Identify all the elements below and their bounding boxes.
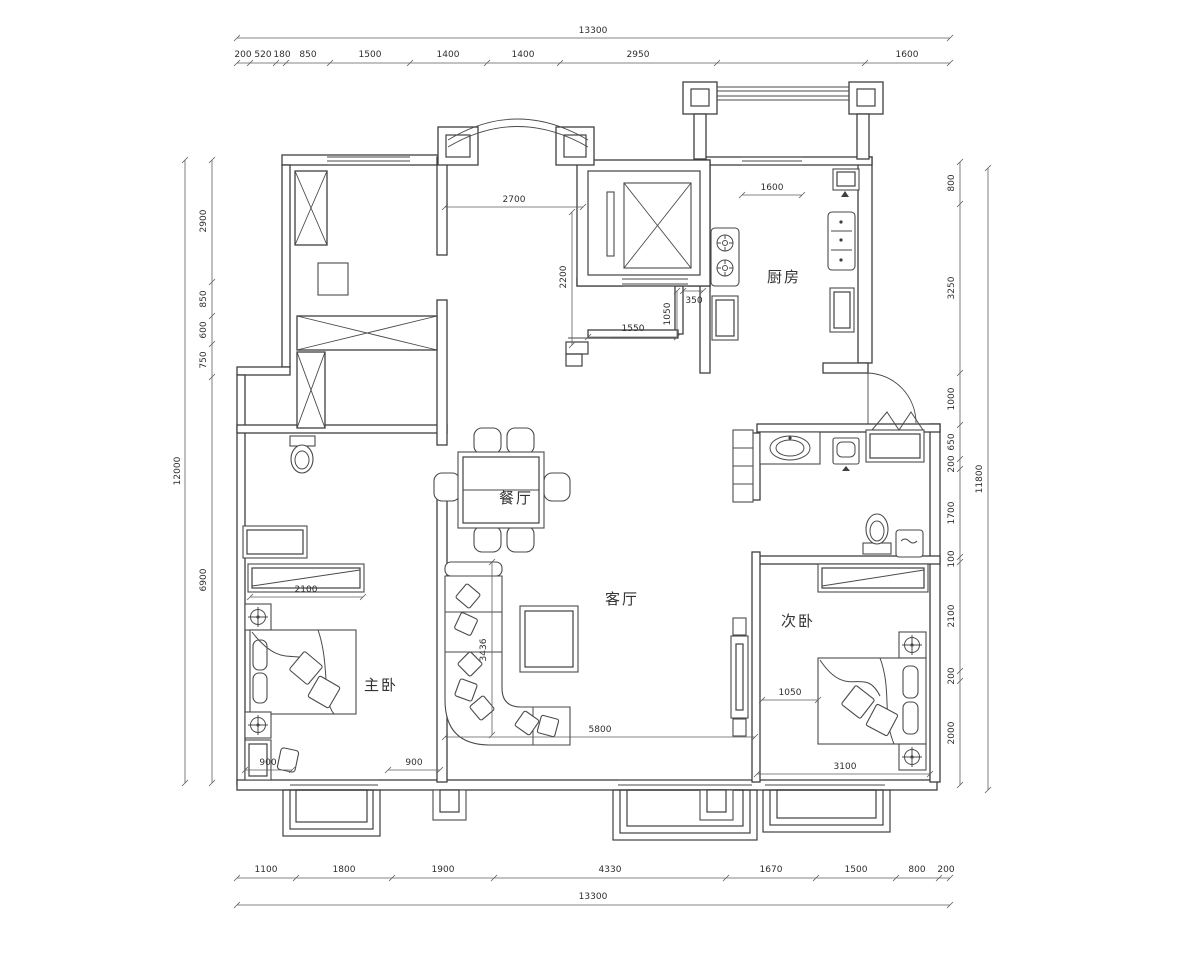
dim-second-w: 3100 (834, 762, 857, 772)
dim-bottom-7: 200 (937, 865, 954, 875)
room-label-second: 次卧 (781, 612, 815, 630)
entry-steps (566, 338, 610, 366)
dim-right-2: 1000 (947, 387, 957, 410)
dim-top-total: 13300 (579, 26, 608, 36)
chair (474, 428, 501, 454)
tv-unit (731, 636, 748, 718)
dim-right-0: 800 (947, 174, 957, 191)
chair (434, 473, 460, 501)
dim-right-5: 1700 (947, 501, 957, 524)
dim-entry-a: 350 (685, 296, 702, 306)
dim-master-b: 900 (405, 758, 422, 768)
room-label-master: 主卧 (364, 676, 398, 694)
utility-box (318, 263, 348, 295)
dim-left-4: 6900 (199, 568, 209, 591)
coffee-table (520, 606, 578, 672)
dim-arch-depth: 2200 (559, 265, 569, 288)
dim-top-0: 200 (234, 50, 251, 60)
dim-entry-c: 1550 (622, 324, 645, 334)
seat-pillow (277, 747, 299, 772)
room-label-living: 客厅 (605, 590, 639, 608)
dim-top-2: 180 (273, 50, 290, 60)
railing (717, 87, 849, 100)
dim-top-3: 850 (299, 50, 316, 60)
dim-left-3: 750 (199, 351, 209, 368)
speaker (733, 719, 746, 736)
dim-left-0: 2900 (199, 209, 209, 232)
dim-living-w: 5800 (589, 725, 612, 735)
dim-right-3: 650 (947, 433, 957, 450)
dim-top-6: 1400 (512, 50, 535, 60)
toilet (863, 514, 891, 554)
sofa-armrest (445, 562, 502, 576)
dim-bottom-5: 1500 (845, 865, 868, 875)
dim-bed-gap: 1050 (779, 688, 802, 698)
kitchen-door-arc (868, 373, 916, 424)
dim-left-2: 600 (199, 321, 209, 338)
dim-top-8: 1600 (896, 50, 919, 60)
master-bedroom-furniture (243, 436, 364, 780)
dim-bottom-6: 800 (908, 865, 925, 875)
dim-bottom-3: 4330 (599, 865, 622, 875)
floor-plan-page: 13300 200 520 180 850 1500 1400 1400 295… (0, 0, 1200, 960)
master-toilet (290, 436, 315, 473)
floor-plan-svg: 13300 200 520 180 850 1500 1400 1400 295… (0, 0, 1200, 960)
bathroom-fixtures (733, 412, 924, 557)
speaker (733, 618, 746, 635)
second-bedroom-furniture (818, 564, 928, 770)
dim-arch-width: 2700 (503, 195, 526, 205)
dim-bottom-1: 1800 (333, 865, 356, 875)
arch-entry (438, 119, 594, 165)
dim-bottom-0: 1100 (255, 865, 278, 875)
cushion (537, 715, 559, 737)
dim-left-1: 850 (199, 290, 209, 307)
dim-bottom-total: 13300 (579, 892, 608, 902)
dim-bottom-4: 1670 (760, 865, 783, 875)
dim-living-h: 3436 (479, 638, 489, 661)
dresser (243, 526, 307, 558)
dim-right-total: 11800 (975, 464, 985, 493)
dim-right-6: 100 (947, 550, 957, 567)
structural-columns (295, 171, 437, 428)
dim-master-a: 900 (259, 758, 276, 768)
side-cabinet (896, 530, 923, 557)
sofa-set (445, 562, 748, 745)
chair (507, 428, 534, 454)
dim-top-4: 1500 (359, 50, 382, 60)
hall-cabinet (866, 430, 924, 462)
room-label-kitchen: 厨房 (767, 268, 801, 286)
dim-bottom-2: 1900 (432, 865, 455, 875)
dim-right-1: 3250 (947, 276, 957, 299)
balconies (283, 790, 890, 840)
dim-right-9: 2000 (947, 721, 957, 744)
dim-top-5: 1400 (437, 50, 460, 60)
dim-right-7: 2100 (947, 604, 957, 627)
dim-wardrobe: 2100 (295, 585, 318, 595)
chair (507, 526, 534, 552)
dim-top-7: 2950 (627, 50, 650, 60)
chair (474, 526, 501, 552)
dim-top-1: 520 (254, 50, 271, 60)
dim-left-total: 12000 (173, 456, 183, 485)
dim-kitchen-window: 1600 (761, 183, 784, 193)
dim-right-8: 200 (947, 667, 957, 684)
room-label-dining: 餐厅 (499, 489, 533, 507)
chair (544, 473, 570, 501)
dim-right-4: 200 (947, 455, 957, 472)
top-balcony (683, 82, 883, 159)
elevator-shaft (577, 160, 710, 286)
dim-entry-b: 1050 (663, 302, 673, 325)
